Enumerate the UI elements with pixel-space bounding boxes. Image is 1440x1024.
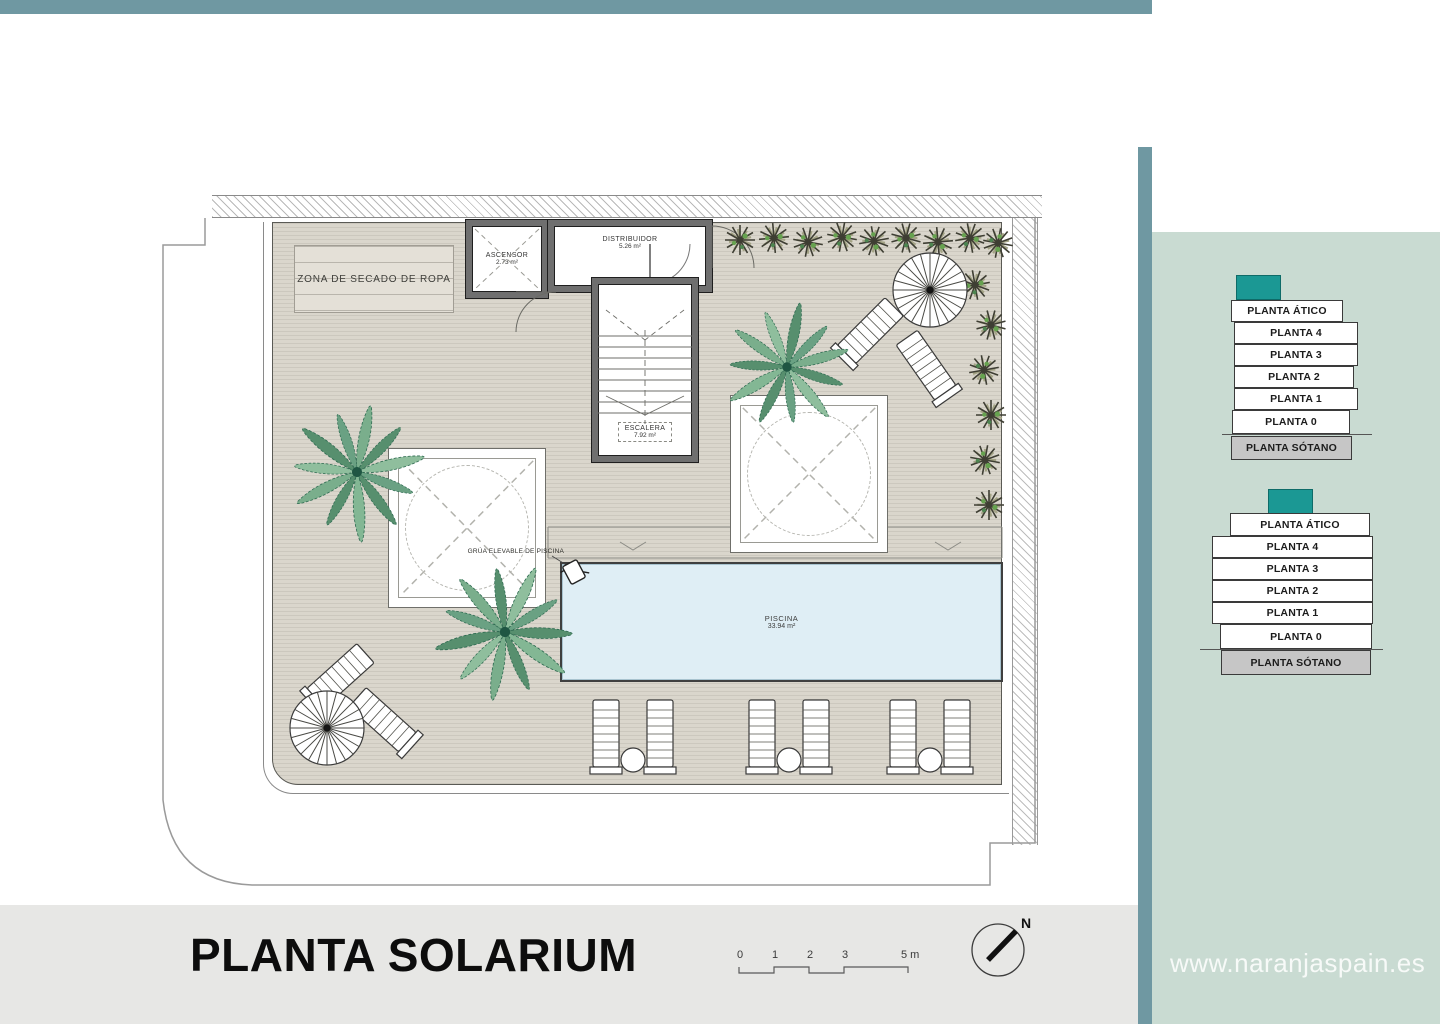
wall-hatch-top: [212, 195, 1042, 218]
stack2-floor-sotano: PLANTA SÓTANO: [1221, 650, 1371, 675]
pool-area: 33.94 m²: [768, 623, 796, 630]
stack1-floor-4: PLANTA 4: [1234, 322, 1358, 344]
escalera-label: ESCALERA 7.92 m²: [618, 422, 673, 442]
frame-right-bar: [1138, 147, 1152, 1024]
wall-hatch-right: [1012, 218, 1038, 845]
skylight-right-cross-icon: [731, 396, 887, 552]
distribuidor-door-arc-icon: [554, 226, 706, 286]
stack1-floor-0: PLANTA 0: [1232, 410, 1350, 434]
escalera-name: ESCALERA: [625, 425, 666, 432]
scale-end-label: 5 m: [901, 949, 919, 961]
stack2-floor-4: PLANTA 4: [1212, 536, 1373, 558]
room-escalera: ESCALERA 7.92 m²: [592, 278, 698, 462]
drying-zone: ZONA DE SECADO DE ROPA: [294, 245, 454, 313]
north-compass: N: [966, 910, 1042, 986]
stack1-floor-1: PLANTA 1: [1234, 388, 1358, 410]
frame-top-bar: [0, 0, 1152, 14]
north-label: N: [1021, 915, 1031, 931]
drying-zone-label: ZONA DE SECADO DE ROPA: [297, 274, 451, 285]
swimming-pool: PISCINA 33.94 m²: [560, 562, 1003, 682]
ascensor-name: ASCENSOR: [486, 252, 529, 259]
scale-tick-3: 3: [842, 949, 848, 961]
scale-tick-1: 1: [772, 949, 778, 961]
scale-bar-line: [739, 967, 908, 973]
scale-bar: 0 1 2 3 5 m: [733, 946, 943, 986]
skylight-left-cross-icon: [389, 449, 545, 607]
stack2-floor-1: PLANTA 1: [1212, 602, 1373, 624]
stack2-floor-0: PLANTA 0: [1220, 624, 1372, 649]
stack1-floor-atico: PLANTA ÁTICO: [1231, 300, 1343, 322]
stack1-floor-2: PLANTA 2: [1234, 366, 1354, 388]
pool-name: PISCINA: [765, 614, 799, 623]
stack2-floor-atico: PLANTA ÁTICO: [1230, 513, 1370, 536]
stack1-floor-3: PLANTA 3: [1234, 344, 1358, 366]
page-title: PLANTA SOLARIUM: [190, 928, 637, 982]
stack2-floor-2: PLANTA 2: [1212, 580, 1373, 602]
skylight-left: [388, 448, 546, 608]
page: ZONA DE SECADO DE ROPA PISCINA 33.94 m² …: [0, 0, 1440, 1024]
distribuidor-name: DISTRIBUIDOR: [603, 236, 658, 243]
scale-tick-2: 2: [807, 949, 813, 961]
skylight-right: [730, 395, 888, 553]
stack2-atico-highlight: [1268, 489, 1313, 514]
stack1-floor-sotano: PLANTA SÓTANO: [1231, 436, 1352, 460]
stack1-atico-highlight: [1236, 275, 1281, 300]
escalera-area: 7.92 m²: [625, 432, 666, 439]
watermark: www.naranjaspain.es: [1170, 948, 1420, 979]
scale-tick-0: 0: [737, 949, 743, 961]
distribuidor-area: 5.26 m²: [619, 243, 641, 250]
ascensor-area: 2.73 m²: [496, 259, 518, 266]
crane-label: GRÚA ELEVABLE DE PISCINA: [452, 548, 564, 555]
room-ascensor: ASCENSOR 2.73 m²: [466, 220, 548, 298]
stack1-ground-line: [1222, 434, 1372, 435]
stack2-floor-3: PLANTA 3: [1212, 558, 1373, 580]
